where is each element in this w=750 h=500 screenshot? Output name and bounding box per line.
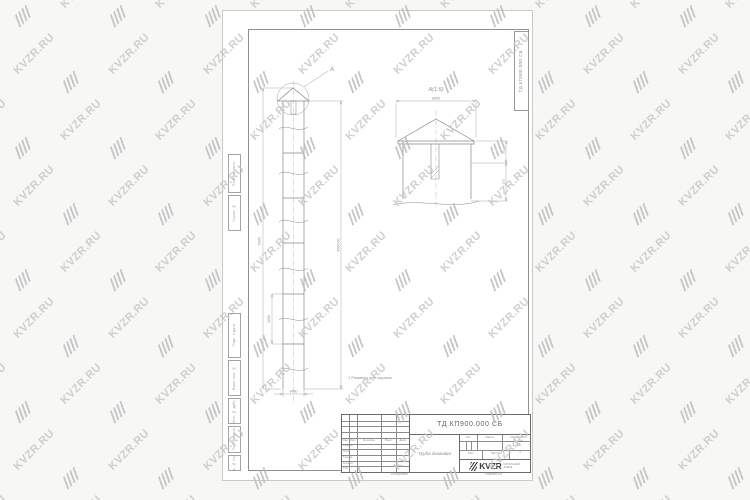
sheets-label: Листов [482, 452, 509, 455]
watermark-text: KVZR.RU [628, 493, 674, 500]
watermark-text: KVZR.RU [343, 493, 389, 500]
watermark-text: KVZR.RU [106, 427, 152, 473]
watermark-text: KVZR.RU [723, 0, 750, 11]
watermark-text: KVZR.RU [676, 31, 722, 77]
detail-view-title: А(1:5) [428, 87, 444, 93]
watermark-text: KVZR.RU [153, 493, 199, 500]
watermark-text: KVZR.RU [628, 361, 674, 407]
watermark-text: KVZR.RU [11, 163, 57, 209]
sheet-label: Лист [460, 452, 482, 455]
dim-right-height: 4500.00 [337, 239, 341, 252]
watermark-text: KVZR.RU [723, 361, 750, 407]
watermark-icon [158, 202, 174, 226]
watermark-icon [680, 400, 696, 424]
title-block: Изм. Лист № докум. Подп. Дата Разраб. Пр… [341, 414, 531, 473]
watermark-icon [63, 70, 79, 94]
row-tkontr: Т.контр. [343, 456, 357, 459]
watermark-text: KVZR.RU [438, 493, 484, 500]
watermark-icon [63, 202, 79, 226]
title-block-scale-grid: Лит. Масса Масштаб 1:15 Лист Листов 1 [459, 434, 530, 459]
watermark-text: KVZR.RU [248, 493, 294, 500]
watermark-icon [680, 4, 696, 28]
detail-dim-bottom: 100 [502, 179, 506, 185]
detail-dim-top: 50 [502, 150, 506, 154]
watermark-icon [205, 268, 221, 292]
technical-drawing: А 5000 1000 4500.00 ø450 А(1:5) ø590 50 … [223, 11, 534, 482]
drawing-sheet: Перв. примен. Справ. № Подп. и дата Взам… [222, 10, 533, 481]
row-nkontr: Н.контр. [343, 462, 357, 465]
watermark-text: KVZR.RU [533, 493, 579, 500]
watermark-icon [585, 136, 601, 160]
watermark-text: KVZR.RU [58, 361, 104, 407]
title-block-organization: KVZR КОТЕЛЬНЫЙ ЗАВОД [459, 459, 530, 472]
watermark-icon [633, 70, 649, 94]
copied-label: Копировал [391, 473, 408, 476]
watermark-text: KVZR.RU [533, 361, 579, 407]
watermark-text: KVZR.RU [11, 295, 57, 341]
watermark-text: KVZR.RU [723, 229, 750, 275]
watermark-icon [728, 466, 744, 490]
watermark-icon [15, 268, 31, 292]
watermark-icon [728, 70, 744, 94]
title-block-designation: ТД.КП900.000 СБ [409, 415, 530, 434]
watermark-text: KVZR.RU [0, 229, 9, 275]
watermark-icon [680, 268, 696, 292]
watermark-icon [633, 466, 649, 490]
watermark-icon [680, 136, 696, 160]
dim-mid-section: 1000 [267, 315, 271, 323]
watermark-text: KVZR.RU [106, 31, 152, 77]
drawing-note: 1 Размеры для справок [348, 375, 392, 380]
watermark-text: KVZR.RU [581, 295, 627, 341]
watermark-icon [205, 400, 221, 424]
watermark-icon [110, 400, 126, 424]
watermark-text: KVZR.RU [0, 493, 9, 500]
title-block-part-name: Труба дымовая [409, 434, 459, 472]
drawing-texts: А 5000 1000 4500.00 ø450 А(1:5) ø590 50 … [258, 67, 506, 394]
watermark-text: KVZR.RU [58, 493, 104, 500]
col-izm: Изм. [342, 439, 349, 442]
watermark-icon [633, 202, 649, 226]
page-background: Перв. примен. Справ. № Подп. и дата Взам… [0, 0, 750, 500]
scale-value: 1:15 [502, 443, 531, 447]
detail-callout-circle [277, 71, 328, 115]
watermark-text: KVZR.RU [628, 0, 674, 11]
watermark-text: KVZR.RU [533, 229, 579, 275]
watermark-text: KVZR.RU [11, 31, 57, 77]
row-utv: Утв. [343, 467, 357, 470]
watermark-text: KVZR.RU [0, 0, 9, 11]
watermark-icon [110, 4, 126, 28]
watermark-icon [538, 202, 554, 226]
mass-label: Масса [477, 436, 502, 439]
watermark-text: KVZR.RU [58, 229, 104, 275]
watermark-icon [585, 4, 601, 28]
row-razrab: Разраб. [343, 444, 357, 447]
watermark-text: KVZR.RU [628, 97, 674, 143]
col-podp: Подп. [381, 439, 396, 442]
watermark-text: KVZR.RU [581, 31, 627, 77]
watermark-text: KVZR.RU [533, 97, 579, 143]
watermark-icon [728, 334, 744, 358]
watermark-text: KVZR.RU [676, 163, 722, 209]
kvzr-logo-icon [469, 462, 478, 471]
axis-lines [294, 81, 437, 403]
detail-callout-label: А [329, 67, 334, 73]
watermark-text: KVZR.RU [153, 361, 199, 407]
watermark-icon [158, 334, 174, 358]
watermark-icon [15, 400, 31, 424]
watermark-text: KVZR.RU [0, 97, 9, 143]
watermark-text: KVZR.RU [153, 97, 199, 143]
title-block-revision-table: Изм. Лист № докум. Подп. Дата Разраб. Пр… [342, 415, 409, 472]
watermark-icon [538, 70, 554, 94]
watermark-icon [110, 268, 126, 292]
watermark-text: KVZR.RU [628, 229, 674, 275]
col-data: Дата [396, 439, 409, 442]
dim-overall-height: 5000 [258, 237, 262, 245]
dimension-lines [262, 88, 508, 397]
scale-label: Масштаб [502, 436, 531, 439]
watermark-icon [110, 136, 126, 160]
watermark-text: KVZR.RU [58, 97, 104, 143]
watermark-icon [633, 334, 649, 358]
watermark-icon [158, 70, 174, 94]
watermark-text: KVZR.RU [676, 427, 722, 473]
lit-label: Лит. [460, 436, 477, 439]
watermark-icon [585, 400, 601, 424]
detail-dim-width: ø590 [432, 96, 440, 100]
kvzr-logo-text: KVZR [479, 461, 501, 471]
watermark-icon [538, 334, 554, 358]
kvzr-tagline-line2: ЗАВОД [504, 466, 520, 469]
watermark-icon [585, 268, 601, 292]
watermark-icon [158, 466, 174, 490]
watermark-icon [63, 334, 79, 358]
watermark-icon [538, 466, 554, 490]
watermark-icon [205, 136, 221, 160]
col-list: Лист [349, 439, 357, 442]
watermark-text: KVZR.RU [106, 163, 152, 209]
col-dokum: № докум. [357, 439, 381, 442]
watermark-text: KVZR.RU [723, 493, 750, 500]
watermark-icon [63, 466, 79, 490]
dim-pipe-diameter: ø450 [290, 390, 298, 394]
watermark-text: KVZR.RU [11, 427, 57, 473]
watermark-text: KVZR.RU [581, 427, 627, 473]
watermark-text: KVZR.RU [58, 0, 104, 11]
row-prov: Пров. [343, 450, 357, 453]
watermark-text: KVZR.RU [676, 295, 722, 341]
watermark-text: KVZR.RU [533, 0, 579, 11]
watermark-text: KVZR.RU [581, 163, 627, 209]
watermark-icon [728, 202, 744, 226]
watermark-text: KVZR.RU [106, 295, 152, 341]
watermark-icon [15, 4, 31, 28]
watermark-text: KVZR.RU [723, 97, 750, 143]
watermark-text: KVZR.RU [153, 0, 199, 11]
watermark-icon [205, 4, 221, 28]
format-label: Формат А4 [485, 473, 502, 476]
watermark-text: KVZR.RU [153, 229, 199, 275]
watermark-icon [15, 136, 31, 160]
watermark-text: KVZR.RU [0, 361, 9, 407]
kvzr-logo-tagline: КОТЕЛЬНЫЙ ЗАВОД [504, 463, 520, 469]
sheets-value: 1 [509, 451, 531, 455]
